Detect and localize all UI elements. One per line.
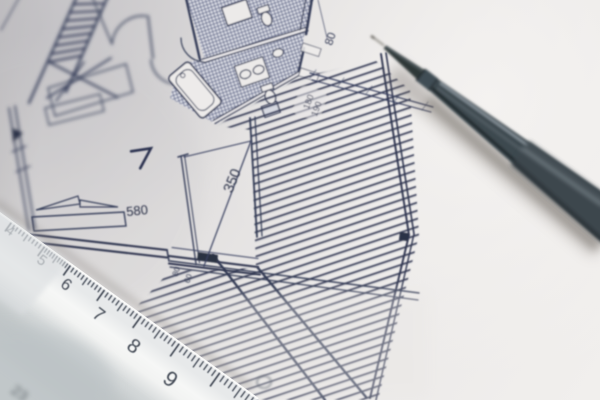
- svg-text:580: 580: [125, 202, 148, 219]
